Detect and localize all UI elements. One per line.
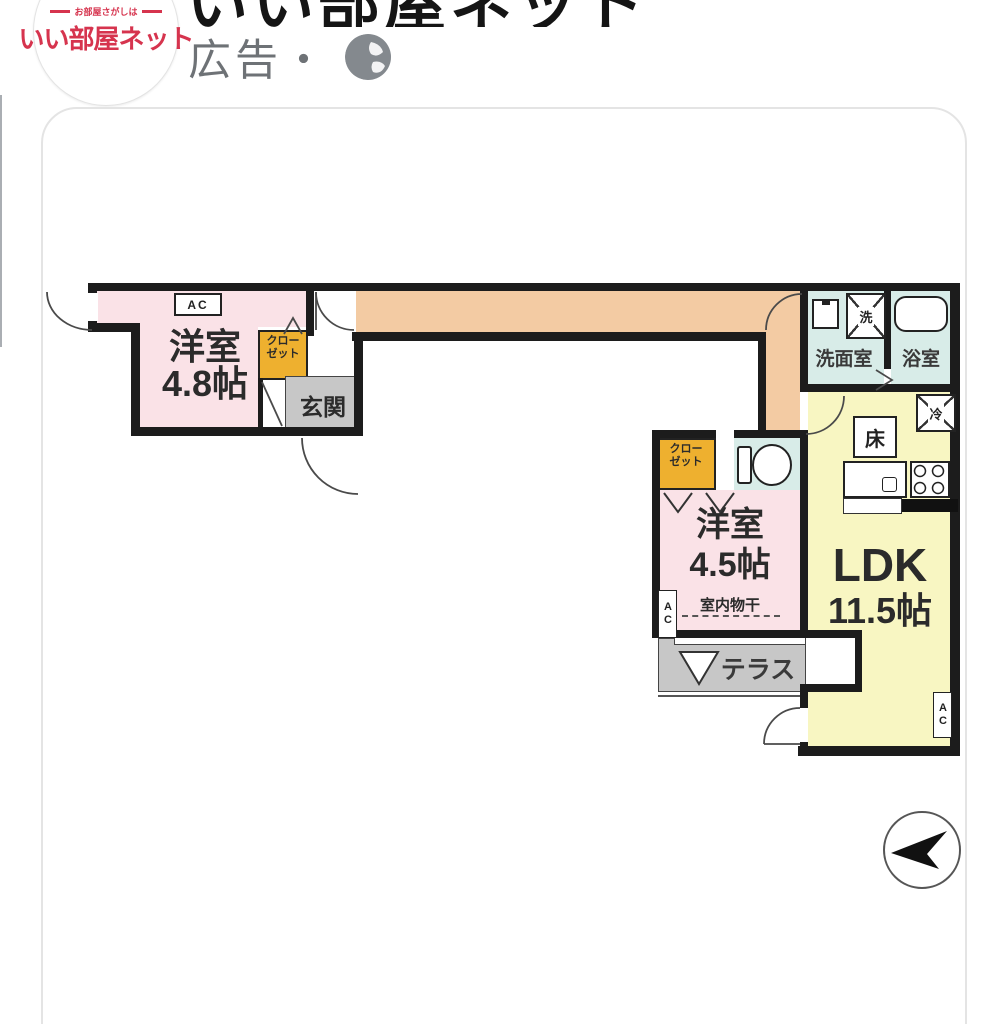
hallway-branch-floor <box>766 332 800 438</box>
fridge-icon: 冷 <box>916 394 956 432</box>
room45-label: 洋室 4.5帖 <box>660 505 800 585</box>
kitchen-counter-end <box>902 499 958 512</box>
tagline-rule-left <box>50 10 70 13</box>
ldk-floor-lower <box>808 692 950 746</box>
sink-faucet <box>822 299 830 305</box>
wall-hall-branch-left <box>758 332 766 438</box>
terrace-label: テラス <box>716 650 800 686</box>
indoor-drying-label: 室内物干 <box>660 594 800 615</box>
screen-edge-artifact <box>0 95 2 347</box>
wall-ldk-left-b <box>800 742 808 756</box>
terrace-edge-line <box>658 695 806 697</box>
wall-washroom-left <box>800 283 808 392</box>
sink-icon <box>812 299 839 329</box>
toilet-room-floor <box>734 438 800 490</box>
floor-storage-icon: 床 <box>853 416 897 458</box>
wall-hall-bottom <box>352 332 766 341</box>
compass-icon <box>883 811 961 889</box>
logo-brand-text: いい部屋ネット <box>19 19 194 56</box>
wall-room45-top-right <box>734 430 808 438</box>
kitchen-counter <box>843 498 902 514</box>
ad-disclosure-row: 広告・ <box>188 26 393 88</box>
washroom-label: 洗面室 <box>804 344 884 371</box>
post-title-cropped: いい部屋ネット <box>186 0 746 27</box>
stove-icon <box>910 461 950 498</box>
indoor-drying-dashes <box>682 615 780 617</box>
wall-top <box>92 283 958 291</box>
north-arrow-icon <box>885 813 954 882</box>
wall-nook-right <box>855 630 862 692</box>
globe-icon <box>343 32 393 82</box>
tagline-rule-right <box>142 10 162 13</box>
wall-wet-area-bottom <box>802 384 960 392</box>
wall-room48-bottom <box>131 427 363 436</box>
closet2-label: クロー ゼット <box>658 443 714 469</box>
entrance-label: 玄関 <box>285 388 361 422</box>
post-title-text: いい部屋ネット <box>186 0 648 27</box>
kitchen-sink-bowl <box>882 477 897 492</box>
wall-room45-top-left <box>652 430 716 438</box>
kitchen-sink-icon <box>843 461 907 498</box>
door-gap-room48 <box>87 293 98 321</box>
bathtub-icon <box>894 296 948 332</box>
wall-nook-bottom <box>806 684 862 692</box>
wall-ldk-bottom <box>798 746 960 756</box>
logo-tagline: お部屋さがしは <box>50 5 161 18</box>
washer-icon: 洗 <box>846 293 886 339</box>
hallway-floor <box>356 291 800 332</box>
ldk-label: LDK 11.5帖 <box>810 540 950 632</box>
wall-right <box>950 283 960 756</box>
screenshot-root: { "header": { "logo_tagline": "お部屋さがしは",… <box>0 0 981 1024</box>
wall-room45-right <box>800 438 808 638</box>
advertiser-logo[interactable]: お部屋さがしは いい部屋ネット <box>33 0 179 106</box>
ldk-floor-mid <box>862 638 950 692</box>
bathroom-label: 浴室 <box>892 344 950 371</box>
ad-label: 広告・ <box>188 26 329 88</box>
ac-label-room48: AC <box>174 293 222 316</box>
ac-label-ldk: AC <box>933 692 952 738</box>
wall-room48-right <box>306 283 314 336</box>
wall-ldk-left-a <box>800 684 808 708</box>
closet1-label: クロー ゼット <box>258 335 308 361</box>
